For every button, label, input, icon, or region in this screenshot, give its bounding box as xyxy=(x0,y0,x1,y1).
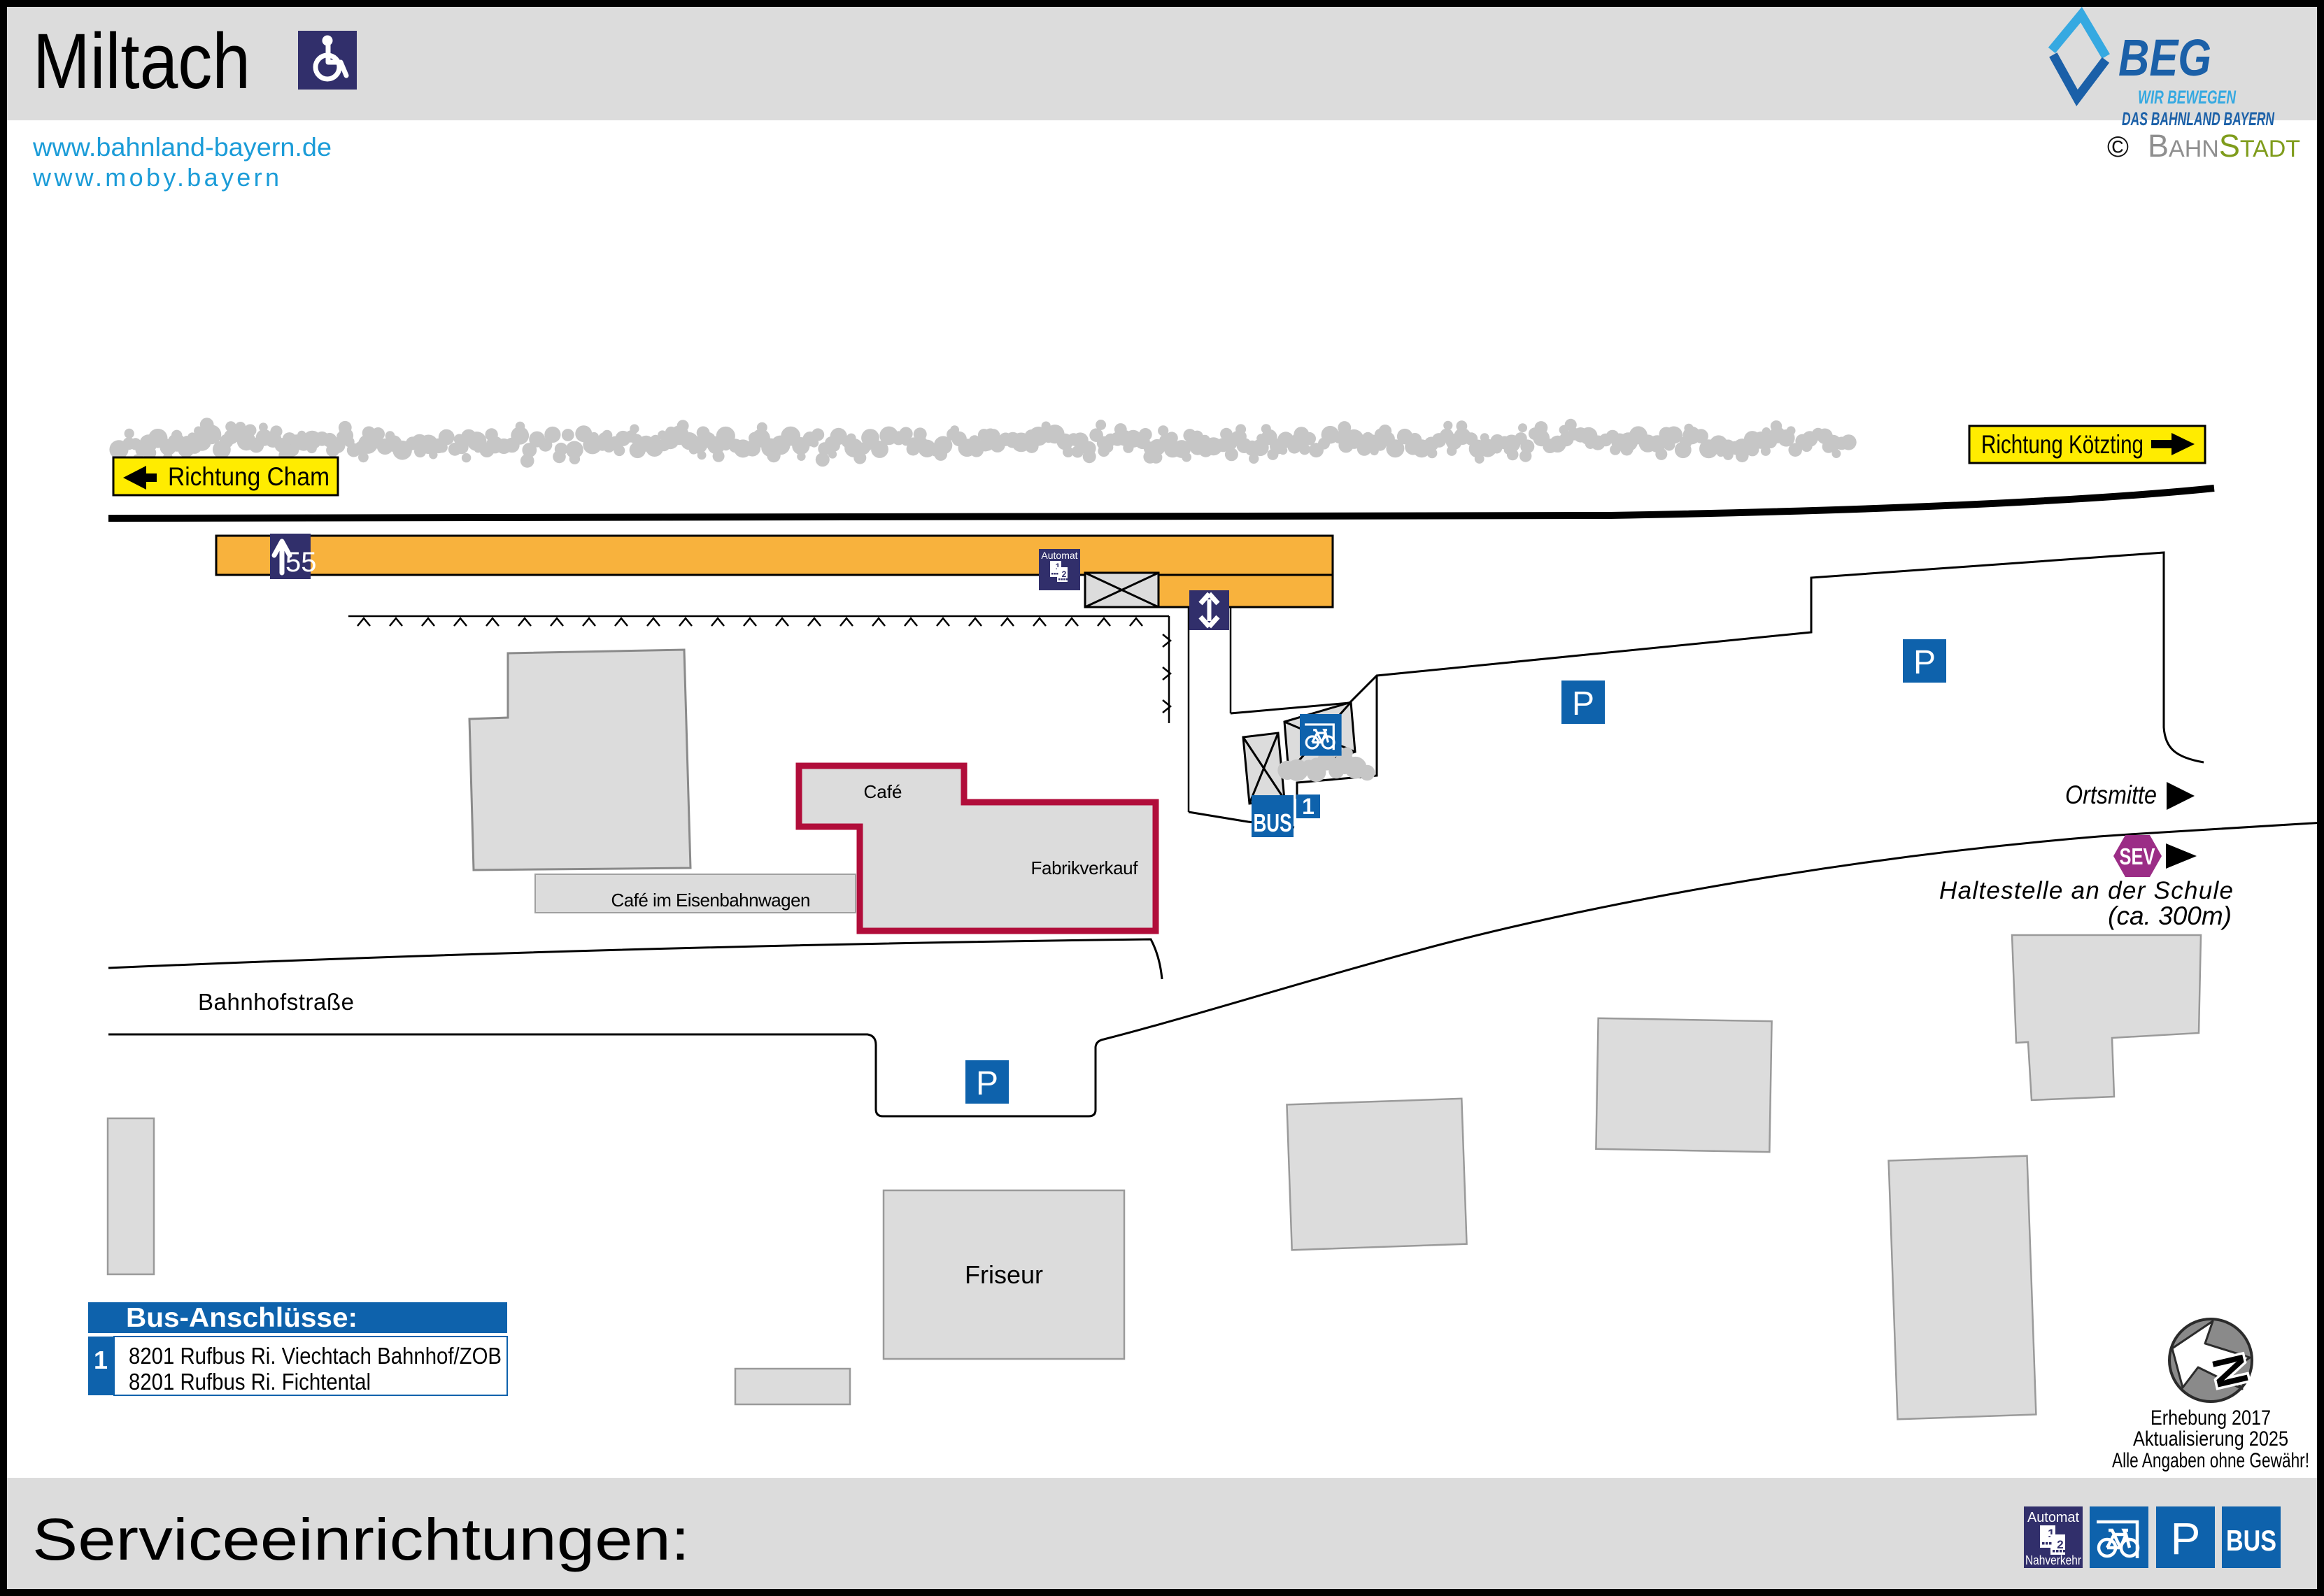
svg-text:Café im Eisenbahnwagen: Café im Eisenbahnwagen xyxy=(611,890,811,911)
svg-text:2: 2 xyxy=(1062,569,1067,579)
svg-text:BUS: BUS xyxy=(2226,1524,2276,1557)
svg-text:Serviceeinrichtungen:: Serviceeinrichtungen: xyxy=(32,1506,690,1572)
svg-text:2: 2 xyxy=(2057,1538,2063,1551)
svg-text:P: P xyxy=(1913,644,1936,681)
svg-text:P: P xyxy=(976,1065,998,1102)
svg-text:www.bahnland-bayern.de: www.bahnland-bayern.de xyxy=(32,133,332,162)
svg-text:DAS BAHNLAND BAYERN: DAS BAHNLAND BAYERN xyxy=(2122,108,2274,129)
svg-text:Nahverkehr: Nahverkehr xyxy=(2025,1553,2081,1567)
svg-text:Bahnhofstraße: Bahnhofstraße xyxy=(198,989,354,1015)
svg-text:Richtung Kötzting: Richtung Kötzting xyxy=(1981,430,2144,459)
svg-text:Richtung Cham: Richtung Cham xyxy=(168,462,330,491)
svg-text:Alle Angaben ohne Gewähr!: Alle Angaben ohne Gewähr! xyxy=(2112,1449,2309,1472)
svg-text:Ortsmitte: Ortsmitte xyxy=(2065,781,2157,809)
svg-text:©: © xyxy=(2107,130,2129,163)
svg-text:P: P xyxy=(1572,685,1594,722)
svg-text:Bus-Anschlüsse:: Bus-Anschlüsse: xyxy=(126,1303,357,1333)
svg-text:8201 Rufbus Ri. Viechtach Bahn: 8201 Rufbus Ri. Viechtach Bahnhof/ZOB xyxy=(129,1343,502,1369)
svg-text:BUS: BUS xyxy=(1254,808,1292,837)
svg-text:55: 55 xyxy=(285,547,317,578)
svg-text:Aktualisierung 2025: Aktualisierung 2025 xyxy=(2133,1427,2288,1451)
svg-text:BEG: BEG xyxy=(2118,29,2211,87)
svg-text:8201 Rufbus Ri. Fichtental: 8201 Rufbus Ri. Fichtental xyxy=(129,1369,371,1395)
svg-text:Automat: Automat xyxy=(2027,1510,2079,1525)
svg-text:Erhebung 2017: Erhebung 2017 xyxy=(2151,1406,2271,1430)
svg-text:SEV: SEV xyxy=(2120,843,2155,869)
svg-text:Café: Café xyxy=(864,781,902,802)
svg-text:(ca. 300m): (ca. 300m) xyxy=(2108,902,2232,930)
svg-text:P: P xyxy=(2171,1513,2201,1564)
svg-text:1: 1 xyxy=(94,1346,108,1374)
svg-text:1: 1 xyxy=(1302,794,1315,819)
svg-text:www.moby.bayern: www.moby.bayern xyxy=(32,163,279,192)
svg-text:WIR BEWEGEN: WIR BEWEGEN xyxy=(2138,87,2236,108)
svg-text:Haltestelle an der Schule: Haltestelle an der Schule xyxy=(1939,877,2233,904)
svg-text:Fabrikverkauf: Fabrikverkauf xyxy=(1031,857,1139,878)
svg-text:Automat: Automat xyxy=(1041,550,1077,561)
svg-text:Friseur: Friseur xyxy=(965,1260,1043,1289)
svg-text:Miltach: Miltach xyxy=(33,17,250,105)
